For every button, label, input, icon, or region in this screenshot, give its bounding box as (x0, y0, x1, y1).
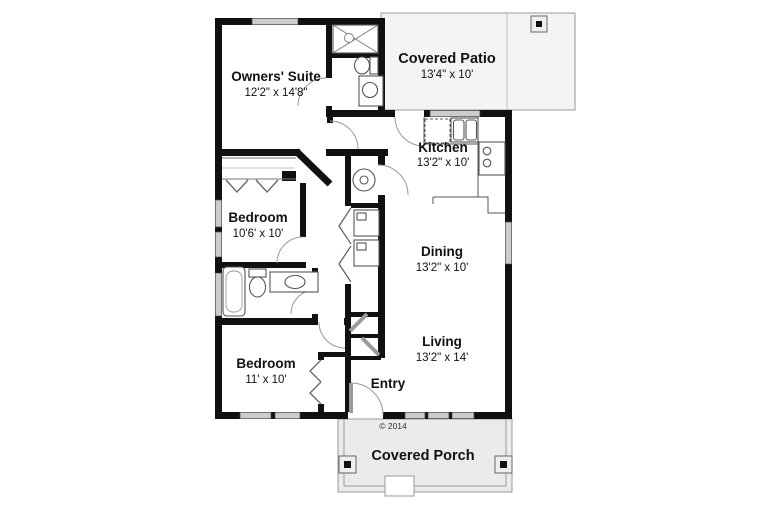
dims-dining: 13'2" x 10' (416, 262, 469, 274)
label-covered-porch: Covered Porch (371, 448, 474, 464)
door-swing-icon (277, 237, 303, 263)
vanity-sink-icon (270, 272, 318, 292)
window (275, 413, 300, 419)
dims-bedroom-lower: 11' x 10' (245, 374, 286, 386)
window (430, 111, 480, 117)
closet-door-leaf (362, 338, 379, 355)
door-swing-icon (378, 165, 408, 195)
shower-icon (333, 25, 378, 53)
bifold-door-icon (339, 208, 351, 244)
window (452, 413, 474, 419)
label-entry: Entry (371, 376, 406, 391)
window (405, 413, 425, 419)
vanity-sink-icon (359, 76, 383, 106)
window (252, 19, 298, 25)
door-swing-icon (319, 322, 345, 348)
label-living: Living (422, 334, 462, 349)
toilet-icon (355, 57, 379, 74)
label-bedroom-lower: Bedroom (236, 356, 295, 371)
porch-post-icon (495, 456, 512, 473)
window (216, 232, 222, 257)
bifold-door-icon (339, 246, 351, 282)
bifold-door-icon (256, 180, 278, 192)
door-swing-icon (291, 290, 315, 314)
floor-plan-canvas: Owners' Suite 12'2" x 14'8" Covered Pati… (0, 0, 760, 506)
floor-plan-page: Owners' Suite 12'2" x 14'8" Covered Pati… (0, 0, 760, 506)
bifold-door-icon (310, 382, 321, 404)
label-covered-patio: Covered Patio (398, 51, 496, 67)
label-owners-suite: Owners' Suite (231, 69, 321, 84)
dims-living: 13'2" x 14' (416, 352, 469, 364)
dims-bedroom-upper: 10'6' x 10' (233, 228, 284, 240)
label-dining: Dining (421, 244, 463, 259)
bifold-door-icon (226, 180, 248, 192)
range-icon (479, 142, 505, 175)
toilet-icon (249, 269, 266, 297)
window (240, 413, 271, 419)
door-swing-icon (330, 121, 358, 149)
porch-post-icon (531, 16, 547, 32)
dryer-icon (354, 240, 379, 266)
window (506, 222, 512, 264)
dims-owners-suite: 12'2" x 14'8" (244, 87, 307, 99)
water-heater-icon (353, 169, 375, 191)
porch-post-icon (339, 456, 356, 473)
label-bedroom-upper: Bedroom (228, 210, 287, 225)
window (216, 273, 222, 316)
window (428, 413, 449, 419)
bifold-door-icon (310, 360, 321, 382)
dims-covered-patio: 13'4" x 10' (421, 69, 474, 81)
washer-icon (354, 210, 379, 236)
kitchen-counter (433, 197, 505, 213)
window (216, 200, 222, 227)
dims-kitchen: 13'2" x 10' (417, 157, 470, 169)
step-icon (385, 476, 414, 496)
kitchen-sink-icon (451, 118, 478, 142)
label-kitchen: Kitchen (418, 140, 468, 155)
copyright-text: © 2014 (379, 421, 407, 431)
bathtub-icon (223, 267, 245, 316)
